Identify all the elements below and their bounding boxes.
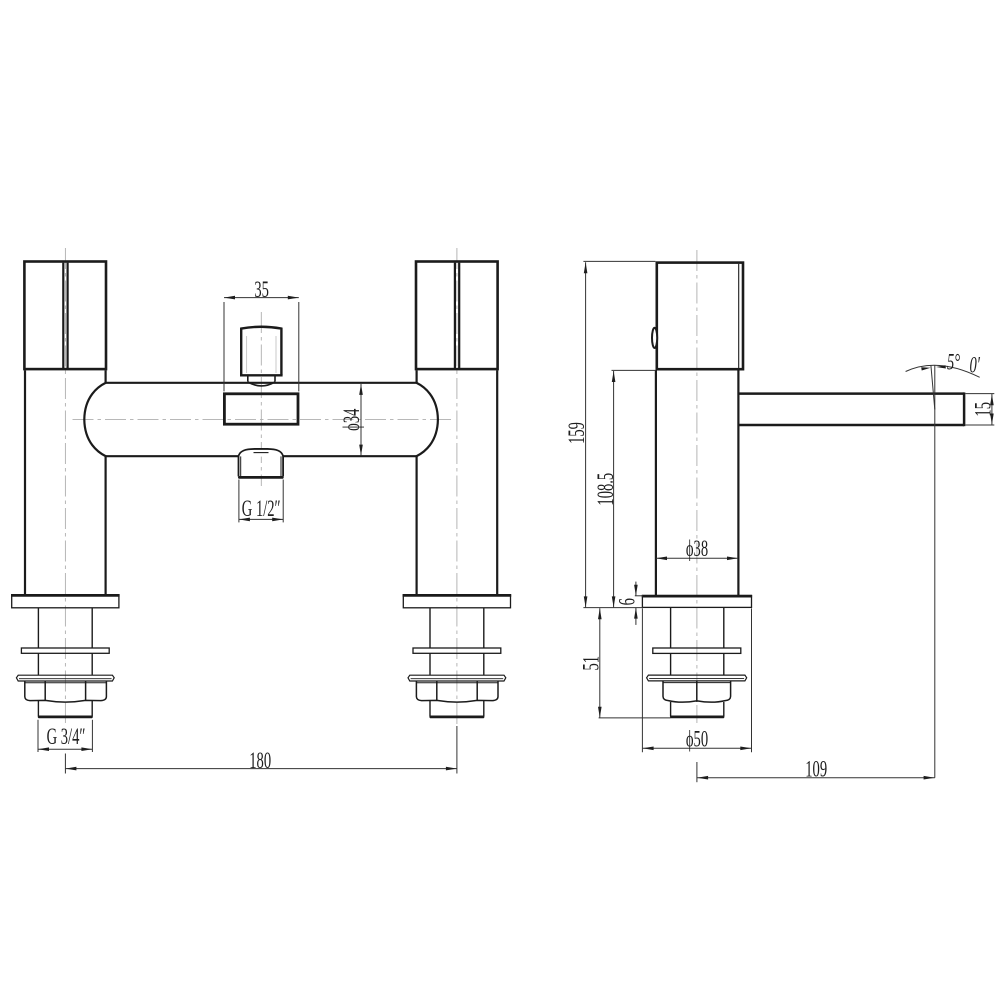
- svg-text:0′: 0′: [970, 353, 981, 378]
- svg-text:109: 109: [805, 757, 827, 782]
- svg-text:ϕ50: ϕ50: [686, 727, 708, 752]
- svg-text:51: 51: [579, 656, 604, 671]
- svg-text:35: 35: [254, 278, 269, 303]
- svg-text:15: 15: [971, 402, 996, 417]
- svg-text:108.5: 108.5: [594, 473, 619, 506]
- svg-text:ϕ34: ϕ34: [340, 408, 365, 430]
- svg-text:G 3/4″: G 3/4″: [47, 725, 86, 750]
- svg-text:ϕ38: ϕ38: [686, 537, 708, 562]
- svg-text:5°: 5°: [947, 350, 960, 375]
- svg-text:159: 159: [565, 422, 590, 444]
- svg-text:G 1/2″: G 1/2″: [242, 497, 281, 522]
- svg-text:6: 6: [615, 598, 640, 605]
- svg-text:180: 180: [249, 749, 271, 774]
